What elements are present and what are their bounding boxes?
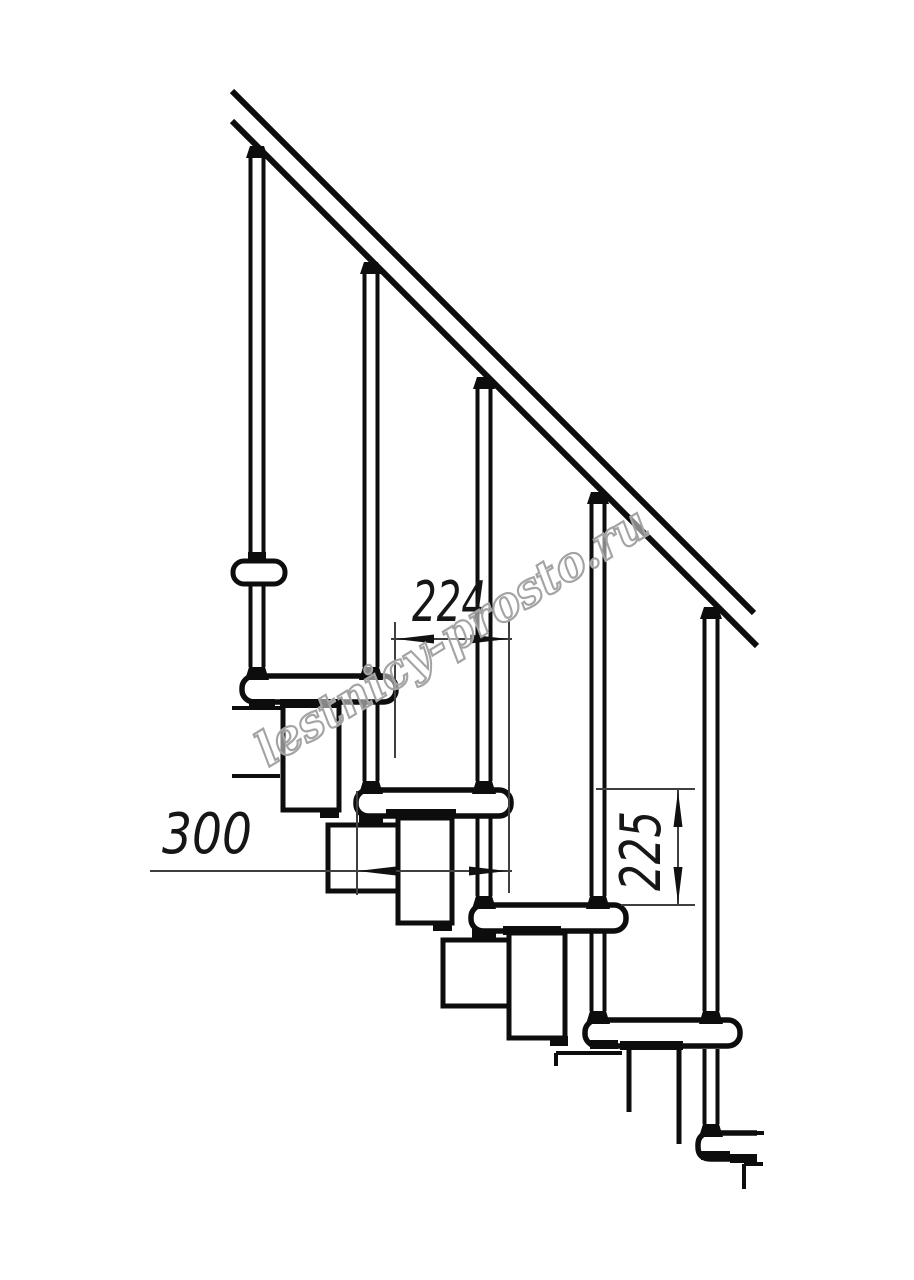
- baluster-1: [251, 156, 264, 667]
- dimension-225: 225: [596, 789, 695, 905]
- baluster-1-top-cap: [246, 146, 268, 158]
- staircase-technical-drawing: 224 300 225 lestnicy-prosto.ru: [0, 0, 914, 1280]
- dim-225-arrow-up: [674, 791, 683, 827]
- baluster-3-base-cap: [472, 781, 496, 794]
- dim-225-arrow-down: [674, 867, 683, 903]
- handrail-end-bracket: [233, 552, 285, 584]
- baluster-3-lower-base-cap: [472, 896, 496, 909]
- watermark-text: lestnicy-prosto.ru: [246, 496, 658, 778]
- baluster-2-lower-base-cap: [359, 781, 383, 794]
- handrail-top-line: [232, 91, 754, 613]
- baluster-5-base-cap: [699, 1011, 723, 1024]
- handrail: [232, 91, 757, 646]
- handrail-bottom-line: [232, 121, 757, 646]
- module-connector-1: [328, 825, 406, 891]
- baluster-4-lower-base-cap: [586, 1011, 610, 1024]
- dim-300-arrow-right: [469, 867, 507, 876]
- bracket-body: [233, 561, 285, 584]
- baluster-1-base-cap: [245, 667, 269, 680]
- dimension-label-rise: 225: [609, 811, 674, 891]
- baluster-5-lower-base-cap: [699, 1124, 723, 1137]
- module-under-step-3: [509, 933, 565, 1038]
- baluster-4-base-cap: [586, 896, 610, 909]
- technical-drawing-page: 224 300 225 lestnicy-prosto.ru: [0, 0, 914, 1280]
- dimension-label-tread-depth: 300: [162, 802, 252, 867]
